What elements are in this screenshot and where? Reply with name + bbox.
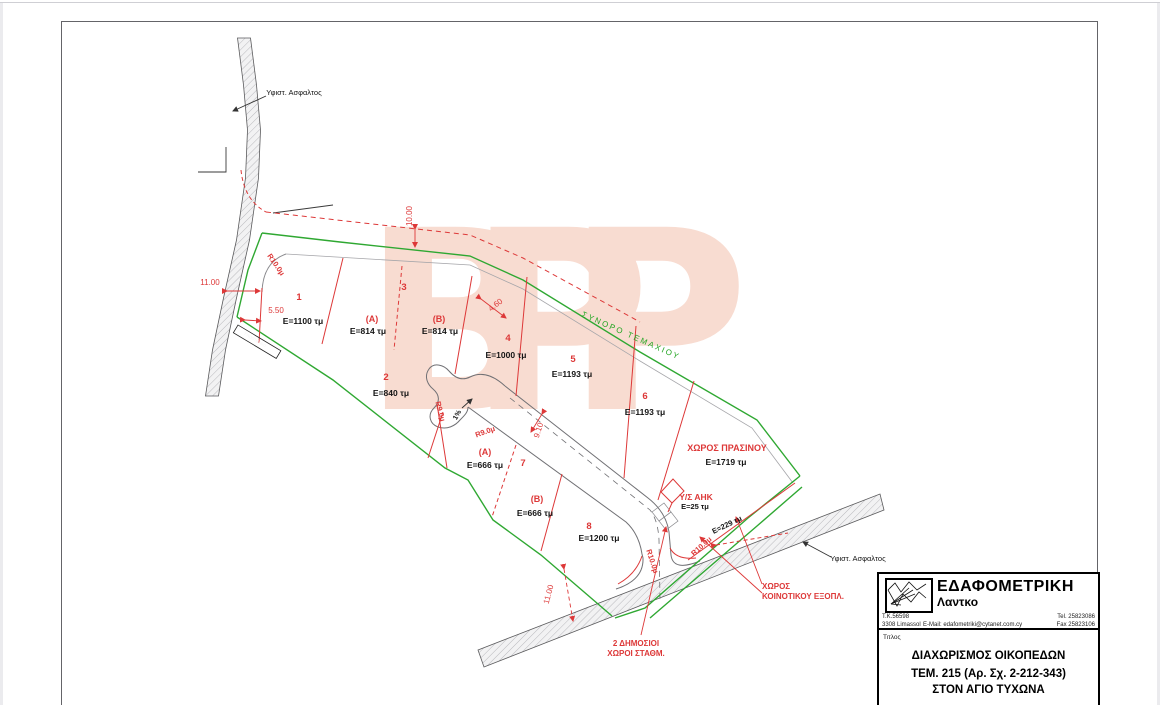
plot6-area: E=1193 τμ [625,407,665,417]
plot1-area: E=1100 τμ [283,316,323,326]
plot7b-num: (B) [531,494,544,504]
dim-11-left: 11.00 [200,278,220,287]
misc-survey-lines [198,147,333,213]
grade-label: 1% [452,408,464,421]
company-tel: Tel. 25823086 [1057,614,1095,620]
dim-5-50: 5.50 [268,306,284,315]
plot6-num: 6 [642,391,647,402]
drawing-title-line2: ΤΕΜ. 215 (Αρ. Σχ. 2-212-343) [879,668,1098,680]
title-block-divider [879,628,1098,630]
parking-zone-line2: ΧΩΡΟΙ ΣΤΑΘΜ. [607,649,665,658]
radius-r10-west: R10.0μ [644,548,660,575]
substation-area: E=25 τμ [681,502,709,511]
green-space-area: E=1719 τμ [706,457,747,467]
left-road-existing-asphalt [206,38,261,396]
radius-r9-a: R9.0μ [433,400,447,422]
plot3-num: 3 [401,282,406,293]
company-name: ΕΔΑΦΟΜΕΤΡΙΚΗ [937,578,1074,596]
black-leader-lines [233,96,831,557]
dim-4-60: 4.60 [487,296,505,313]
label-asphalt-bottom: Υφιστ. Ασφαλτος [830,554,886,563]
dim-10-top: 10.00 [405,205,414,226]
plot8-area: E=1200 τμ [579,533,620,543]
plot7a-num: (A) [479,447,492,457]
survey-plan-page: BPP [0,0,1160,705]
green-space-name: ΧΩΡΟΣ ΠΡΑΣΙΝΟΥ [687,443,767,453]
parking-zone-line1: 2 ΔΗΜΟΣΙΟΙ [613,639,659,648]
parcel-boundary [237,233,802,618]
plot3b-area: E=814 τμ [422,326,458,336]
community-zone-line2: ΚΟΙΝΟΤΙΚΟΥ ΕΞΟΠΛ. [762,592,844,601]
plot3a-num: (A) [366,314,379,324]
title-block: ΕΔΑΦΟΜΕΤΡΙΚΗ Λαντκο Τ.Κ.56598 3308 Limas… [877,572,1100,705]
plot-boundary-lines [241,170,795,584]
plot3b-num: (B) [433,314,446,324]
parcel-boundary-label: ΣΥΝΟΡΟ ΤΕΜΑΧΙΟΥ [580,310,681,362]
company-subname: Λαντκο [937,595,978,609]
company-pobox: Τ.Κ.56598 [882,614,909,620]
plot5-area: E=1193 τμ [552,369,592,379]
drawing-title-line1: ΔΙΑΧΩΡΙΣΜΟΣ ΟΙΚΟΠΕΔΩΝ [879,650,1098,662]
plot7-num: 7 [520,458,525,469]
plot5-num: 5 [570,354,576,365]
company-logo [885,578,933,613]
plot3a-area: E=814 τμ [350,326,386,336]
title-label: Τιτλος [883,634,901,641]
logo-sketch-icon [888,582,926,606]
label-asphalt-top: Υφιστ. Ασφαλτος [266,88,322,97]
drawing-title-line3: ΣΤΟΝ ΑΓΙΟ ΤΥΧΩΝΑ [879,684,1098,696]
plot2-area: E=840 τμ [373,388,409,398]
substation-name: Υ/Σ ΑΗΚ [679,492,713,502]
radius-r9-b: R9.0μ [474,424,497,440]
plot7a-area: E=666 τμ [467,460,503,470]
dim-11-bottom: 11.00 [542,583,556,605]
community-zone-line1: ΧΩΡΟΣ [762,582,790,591]
plot1-num: 1 [296,292,302,303]
radius-r10-entrance: R10.0μ [265,252,287,278]
dim-9-10: 9.10 [532,421,546,439]
plot4-area: E=1000 τμ [486,350,527,360]
plot2-num: 2 [383,372,388,383]
plot8-num: 8 [586,521,591,532]
plot7b-area: E=666 τμ [517,508,553,518]
plot4-num: 4 [505,333,511,344]
